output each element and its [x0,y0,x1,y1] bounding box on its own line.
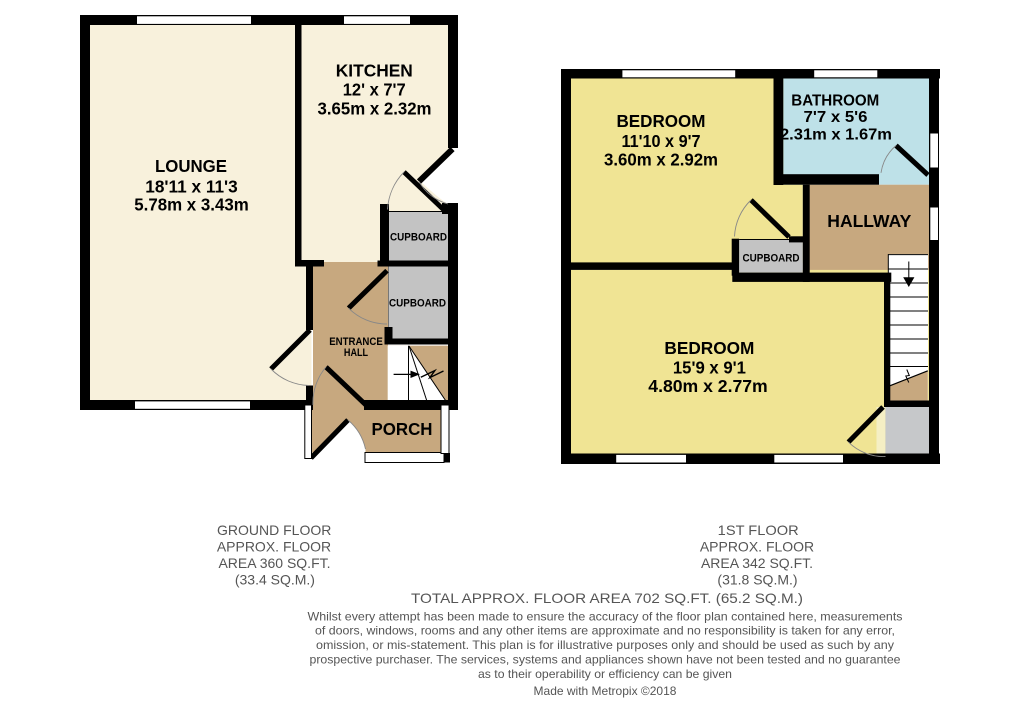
svg-text:Made with Metropix ©2018: Made with Metropix ©2018 [534,684,677,698]
svg-text:as to their operability or eff: as to their operability or efficiency ca… [478,667,732,681]
svg-text:5.78m x 3.43m: 5.78m x 3.43m [134,195,249,215]
svg-text:AREA 360 SQ.FT.: AREA 360 SQ.FT. [218,555,330,571]
svg-text:omission, or mis-statement. Th: omission, or mis-statement. This plan is… [316,638,894,652]
svg-text:12' x 7'7: 12' x 7'7 [343,80,406,100]
svg-text:prospective purchaser. The ser: prospective purchaser. The services, sys… [310,653,901,667]
svg-text:HALL: HALL [344,347,368,359]
svg-text:GROUND FLOOR: GROUND FLOOR [217,522,331,538]
svg-text:CUPBOARD: CUPBOARD [389,298,446,310]
svg-text:18'11 x 11'3: 18'11 x 11'3 [145,176,238,196]
svg-text:7'7 x 5'6: 7'7 x 5'6 [804,109,868,126]
svg-text:11'10 x 9'7: 11'10 x 9'7 [622,131,701,151]
svg-text:BEDROOM: BEDROOM [664,338,754,358]
svg-text:1ST FLOOR: 1ST FLOOR [718,522,799,538]
svg-text:BEDROOM: BEDROOM [617,111,706,131]
svg-text:2.31m x 1.67m: 2.31m x 1.67m [780,127,892,144]
svg-text:APPROX. FLOOR: APPROX. FLOOR [217,538,331,554]
svg-text:(33.4 SQ.M.): (33.4 SQ.M.) [235,571,315,587]
svg-text:HALLWAY: HALLWAY [827,211,912,231]
svg-text:TOTAL APPROX. FLOOR AREA 702 S: TOTAL APPROX. FLOOR AREA 702 SQ.FT. (65.… [411,590,803,606]
svg-text:APPROX. FLOOR: APPROX. FLOOR [700,538,814,554]
svg-text:(31.8 SQ.M.): (31.8 SQ.M.) [717,571,797,587]
svg-text:PORCH: PORCH [372,419,433,439]
svg-text:3.65m x 2.32m: 3.65m x 2.32m [318,99,432,119]
svg-text:CUPBOARD: CUPBOARD [743,252,800,264]
svg-text:LOUNGE: LOUNGE [155,156,227,176]
svg-text:3.60m x 2.92m: 3.60m x 2.92m [604,150,718,170]
svg-text:AREA 342 SQ.FT.: AREA 342 SQ.FT. [701,555,813,571]
svg-text:4.80m x 2.77m: 4.80m x 2.77m [648,376,767,396]
svg-text:CUPBOARD: CUPBOARD [390,231,447,243]
svg-text:KITCHEN: KITCHEN [336,60,413,80]
svg-text:BATHROOM: BATHROOM [791,93,879,110]
svg-text:of doors, windows, rooms and a: of doors, windows, rooms and any other i… [315,624,895,638]
svg-text:Whilst every attempt has been: Whilst every attempt has been made to en… [308,609,903,623]
svg-text:ENTRANCE: ENTRANCE [329,336,383,348]
svg-text:15'9 x 9'1: 15'9 x 9'1 [673,357,746,377]
